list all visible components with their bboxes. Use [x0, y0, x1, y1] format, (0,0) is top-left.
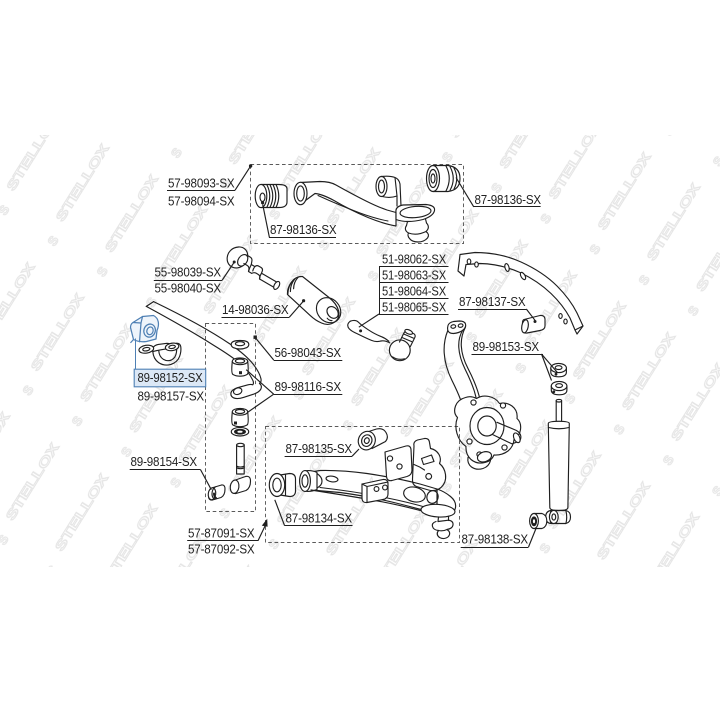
- svg-text:89-98152-SX: 89-98152-SX: [138, 370, 203, 385]
- svg-text:51-98062-SX: 51-98062-SX: [382, 251, 446, 266]
- svg-text:55-98039-SX: 55-98039-SX: [155, 265, 222, 280]
- svg-text:55-98040-SX: 55-98040-SX: [155, 280, 222, 295]
- svg-text:56-98043-SX: 56-98043-SX: [275, 345, 342, 360]
- svg-text:89-98157-SX: 89-98157-SX: [138, 388, 205, 403]
- svg-text:14-98036-SX: 14-98036-SX: [222, 302, 289, 317]
- svg-text:87-98136-SX: 87-98136-SX: [475, 192, 542, 207]
- svg-text:89-98154-SX: 89-98154-SX: [131, 454, 198, 469]
- svg-text:57-98094-SX: 57-98094-SX: [168, 194, 235, 209]
- svg-text:89-98153-SX: 89-98153-SX: [473, 339, 540, 354]
- svg-text:87-98135-SX: 87-98135-SX: [286, 441, 353, 456]
- svg-text:57-87091-SX: 57-87091-SX: [188, 526, 255, 541]
- svg-text:89-98116-SX: 89-98116-SX: [275, 379, 342, 394]
- svg-text:87-98137-SX: 87-98137-SX: [459, 294, 526, 309]
- svg-text:57-98093-SX: 57-98093-SX: [168, 176, 235, 191]
- svg-text:87-98138-SX: 87-98138-SX: [462, 532, 529, 547]
- svg-text:87-98136-SX: 87-98136-SX: [270, 222, 337, 237]
- svg-text:51-98065-SX: 51-98065-SX: [382, 299, 446, 314]
- svg-text:51-98063-SX: 51-98063-SX: [382, 267, 446, 282]
- svg-text:51-98064-SX: 51-98064-SX: [382, 283, 446, 298]
- svg-text:57-87092-SX: 57-87092-SX: [188, 541, 255, 556]
- svg-text:87-98134-SX: 87-98134-SX: [286, 511, 353, 526]
